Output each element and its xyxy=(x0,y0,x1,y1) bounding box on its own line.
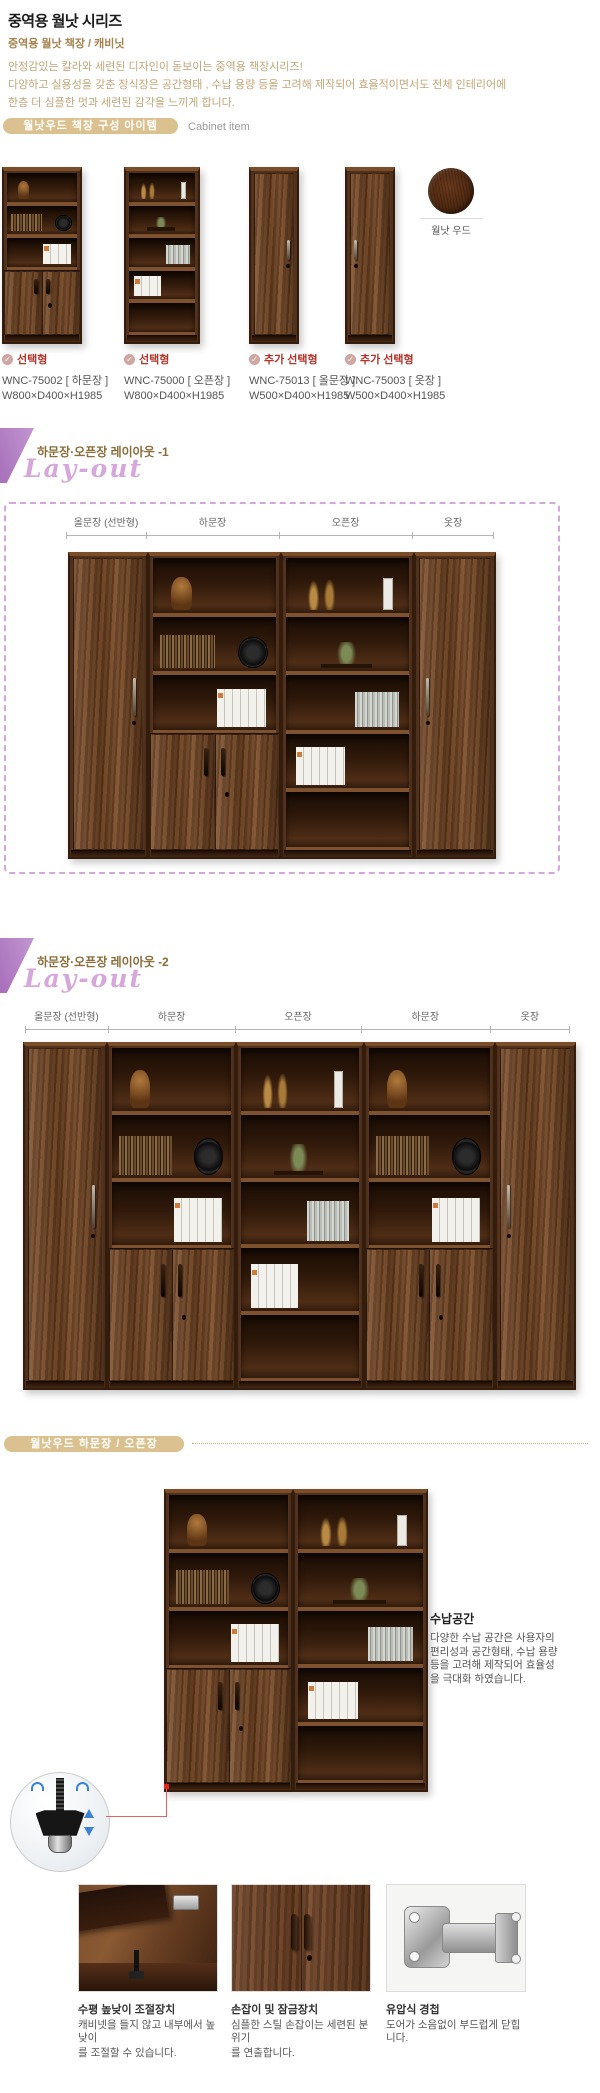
catalog-page: 중역용 월낫 시리즈 중역용 월낫 책장 / 캐비닛 안정감있는 칼라와 세련된… xyxy=(0,0,600,2093)
cd-row-decor xyxy=(368,1627,413,1661)
dimension-label: 하문장 xyxy=(361,1008,490,1023)
cabinet-door xyxy=(254,173,294,335)
shelf xyxy=(369,1182,490,1248)
dimension-line xyxy=(108,1026,236,1033)
hinge-cup xyxy=(495,1913,518,1964)
feature-text: 캐비넷을 들지 않고 내부에서 높낮이를 조절할 수 있습니다. xyxy=(78,2019,218,2060)
statue-decor xyxy=(321,642,373,668)
cabinet-shelves xyxy=(283,556,412,850)
bust-decor xyxy=(187,1514,207,1546)
storage-line: 편리성과 공간형태, 수납 용량 xyxy=(430,1646,580,1660)
cabinet-full_door xyxy=(23,1042,107,1390)
section-side-label: Cabinet item xyxy=(188,121,250,133)
binders-decor xyxy=(217,689,266,727)
keyhole xyxy=(91,1234,95,1238)
cabinet-shelves xyxy=(126,171,198,335)
door-handle xyxy=(204,748,208,776)
books-decor xyxy=(176,1570,229,1603)
cd-row-decor xyxy=(307,1201,349,1241)
page-title: 중역용 월낫 시리즈 xyxy=(8,10,568,31)
cabinet-lower_door xyxy=(107,1042,236,1390)
storage-line: 등을 고려해 제작되어 효율성 xyxy=(430,1659,580,1673)
layout1-cabinets xyxy=(68,552,496,859)
shelf xyxy=(7,238,77,270)
books-decor xyxy=(376,1136,429,1175)
description-line: 안정감있는 칼라와 세련된 디자인이 돋보이는 중역용 책장시리즈! xyxy=(8,58,568,76)
plaque-decor xyxy=(194,1138,223,1175)
cabinet-full_door xyxy=(68,552,148,859)
door-handle xyxy=(287,240,290,261)
cabinet-base xyxy=(127,335,197,342)
shelf xyxy=(241,1048,358,1115)
cabinet-base xyxy=(348,335,392,342)
figurines-decor xyxy=(301,580,343,609)
layout1-script-label: Lay-out xyxy=(24,454,143,483)
bust-decor xyxy=(387,1070,408,1108)
cabinet-full_door xyxy=(249,167,299,344)
layout2-dimensions: 올문장 (선반형)하문장오픈장하문장옷장 xyxy=(25,1008,570,1033)
cabinet-base xyxy=(367,1381,492,1388)
statue-decor xyxy=(274,1144,323,1174)
model-code: WNC-75002 xyxy=(2,375,63,387)
cabinet-doors xyxy=(366,1248,493,1381)
shelf xyxy=(369,1115,490,1182)
leveler-bracket xyxy=(36,1810,85,1835)
books-decor xyxy=(11,214,42,232)
door-handle xyxy=(221,748,225,776)
wood-swatch xyxy=(428,168,474,214)
dimension-segment: 옷장 xyxy=(490,1008,570,1033)
dimension-label: 오픈장 xyxy=(279,514,412,529)
feature-line: 를 조절할 수 있습니다. xyxy=(78,2047,218,2060)
product-type-label: 선택형 xyxy=(17,351,47,367)
page-header: 중역용 월낫 시리즈 중역용 월낫 책장 / 캐비닛 안정감있는 칼라와 세련된… xyxy=(8,10,568,112)
keyhole xyxy=(354,264,358,268)
storage-line: 을 극대화 하였습니다. xyxy=(430,1673,580,1687)
dotted-divider xyxy=(192,1443,588,1444)
feature-box: 유압식 경첩 도어가 소음없이 부드럽게 닫힙니다. xyxy=(386,1884,526,2045)
bust-decor xyxy=(130,1070,150,1108)
cabinet-illustration xyxy=(124,167,244,344)
door-left xyxy=(166,1669,229,1783)
feature-line: 를 연출합니다. xyxy=(231,2047,371,2060)
feature-box: 수평 높낮이 조절장치 캐비넷을 들지 않고 내부에서 높낮이를 조절할 수 있… xyxy=(78,1884,218,2060)
books-decor xyxy=(119,1136,172,1175)
cabinet-base xyxy=(252,335,296,342)
figurines-decor xyxy=(256,1074,296,1108)
shelf xyxy=(286,617,409,676)
door-right xyxy=(429,1249,493,1381)
door-left xyxy=(109,1249,172,1381)
variant-name: [ 옷장 ] xyxy=(409,375,441,387)
storage-note: 수납공간 다양한 수납 공간은 사용자의 편리성과 공간형태, 수납 용량 등을… xyxy=(430,1610,580,1686)
cabinet-base xyxy=(151,850,278,857)
rotate-arrow-icon xyxy=(31,1782,44,1791)
binders-decor xyxy=(43,244,71,264)
shelf xyxy=(129,303,195,335)
dimension-label: 옷장 xyxy=(412,514,494,529)
shelf xyxy=(153,558,276,617)
keyhole xyxy=(48,303,52,308)
cabinet-shelves xyxy=(238,1046,361,1381)
door-right xyxy=(172,1249,235,1381)
product-model: WNC-75003 [ 옷장 ] xyxy=(345,372,465,388)
leveler-bolt xyxy=(134,1950,139,1973)
feature-line: 심플한 스틸 손잡이는 세련된 분위기 xyxy=(231,2019,371,2045)
cabinet-lower_door xyxy=(364,1042,495,1390)
shelf xyxy=(298,1553,423,1611)
check-icon: ✓ xyxy=(345,354,356,365)
page-subtitle: 중역용 월낫 책장 / 캐비닛 xyxy=(8,35,568,51)
cabinet-lower_door xyxy=(2,167,82,344)
callout-connector-line xyxy=(106,1789,167,1817)
keyhole xyxy=(439,1315,443,1320)
description-line: 다양하고 실용성을 갖춘 장식장은 공간형태 , 수납 용량 등을 고려해 제작… xyxy=(8,76,568,94)
cabinet-shelves xyxy=(295,1493,426,1783)
page-description: 안정감있는 칼라와 세련된 디자인이 돋보이는 중역용 책장시리즈! 다양하고 … xyxy=(8,58,568,112)
cabinet-base xyxy=(498,1381,573,1388)
cabinet-shelves xyxy=(109,1046,234,1248)
vase-decor xyxy=(397,1515,407,1546)
statue-decor xyxy=(147,217,175,231)
dimension-line xyxy=(66,532,146,539)
feature-box: 손잡이 및 잠금장치 심플한 스틸 손잡이는 세련된 분위기를 연출합니다. xyxy=(231,1884,371,2060)
threaded-rod xyxy=(56,1778,64,1815)
shelf xyxy=(112,1048,231,1115)
section-pill-items: 월낫우드 책장 구성 아이템 xyxy=(3,118,178,134)
product-type-label: 추가 선택형 xyxy=(360,351,414,367)
dimension-line xyxy=(235,1026,360,1033)
cabinet-bottom xyxy=(79,1963,217,1991)
binders-decor xyxy=(296,747,345,785)
detail-cabinets xyxy=(164,1489,428,1792)
dimension-segment: 하문장 xyxy=(146,514,279,539)
feature-text: 도어가 소음없이 부드럽게 닫힙니다. xyxy=(386,2019,526,2045)
keyhole xyxy=(182,1315,186,1320)
books-decor xyxy=(160,635,214,669)
callout-dot xyxy=(164,1784,169,1789)
shelf xyxy=(286,734,409,793)
cabinet-base xyxy=(296,1783,425,1790)
feature-line: 캐비넷을 들지 않고 내부에서 높낮이 xyxy=(78,2019,218,2045)
keyhole xyxy=(239,1726,243,1731)
product-size: W800×D400×H1985 xyxy=(2,390,122,402)
door-handle xyxy=(34,279,38,295)
cabinet-base xyxy=(167,1783,290,1790)
cabinet-base xyxy=(26,1381,104,1388)
dimension-segment: 오픈장 xyxy=(279,514,412,539)
feature-text: 심플한 스틸 손잡이는 세련된 분위기를 연출합니다. xyxy=(231,2019,371,2060)
shelf xyxy=(241,1248,358,1315)
door-left xyxy=(150,734,215,850)
handles-photo xyxy=(231,1884,371,1992)
shelf xyxy=(298,1726,423,1783)
shelf xyxy=(129,271,195,304)
door-handle xyxy=(92,1185,95,1228)
binders-decor xyxy=(174,1198,222,1242)
vase-decor xyxy=(383,578,393,610)
shelf xyxy=(169,1611,288,1668)
cabinet-doors xyxy=(4,270,80,335)
shelf xyxy=(286,675,409,734)
binders-decor xyxy=(308,1682,358,1720)
keyhole xyxy=(426,721,430,725)
shelf xyxy=(7,173,77,206)
door-handle xyxy=(304,1914,310,1950)
product-type: ✓ 선택형 xyxy=(2,351,122,367)
binders-decor xyxy=(231,1624,279,1662)
binders-decor xyxy=(432,1198,480,1242)
cabinet-base xyxy=(239,1381,360,1388)
dimension-label: 하문장 xyxy=(146,514,279,529)
product-type-label: 선택형 xyxy=(139,351,169,367)
shelf xyxy=(241,1115,358,1182)
door-right xyxy=(215,734,280,850)
door-handle xyxy=(507,1185,510,1228)
dimension-segment: 옷장 xyxy=(412,514,494,539)
product-label: ✓ 추가 선택형 WNC-75003 [ 옷장 ] W500×D400×H198… xyxy=(345,351,465,402)
statue-decor xyxy=(333,1578,385,1604)
shelf-board xyxy=(78,1884,170,1933)
dimension-label: 올문장 (선반형) xyxy=(25,1008,108,1023)
product-label: ✓ 선택형 WNC-75002 [ 하문장 ] W800×D400×H1985 xyxy=(2,351,122,402)
shelf xyxy=(129,173,195,206)
rotate-arrow-icon xyxy=(76,1782,89,1791)
cabinet-wardrobe xyxy=(345,167,395,344)
shelf xyxy=(112,1115,231,1182)
layout1-dimensions: 올문장 (선반형)하문장오픈장옷장 xyxy=(66,514,494,539)
layout1-box: 올문장 (선반형)하문장오픈장옷장 xyxy=(4,502,560,874)
product-type: ✓ 추가 선택형 xyxy=(345,351,465,367)
cabinet-wardrobe xyxy=(414,552,496,859)
dimension-segment: 오픈장 xyxy=(235,1008,360,1033)
cabinet-illustration xyxy=(2,167,122,344)
dimension-segment: 올문장 (선반형) xyxy=(66,514,146,539)
feature-title: 수평 높낮이 조절장치 xyxy=(78,2001,218,2017)
shelf xyxy=(7,206,77,239)
model-code: WNC-75013 xyxy=(249,375,310,387)
plaque-decor xyxy=(238,637,268,669)
vase-decor xyxy=(334,1071,343,1107)
door-handle xyxy=(218,1682,222,1710)
shelf xyxy=(369,1048,490,1115)
shelf xyxy=(298,1611,423,1669)
dimension-line xyxy=(279,532,412,539)
hinge-arm xyxy=(442,1923,500,1953)
product-card: ✓ 선택형 WNC-75000 [ 오픈장 ] W800×D400×H1985 xyxy=(124,167,244,402)
figurines-decor xyxy=(137,183,159,198)
cd-row-decor xyxy=(166,245,190,263)
variant-name: [ 하문장 ] xyxy=(66,375,109,387)
cabinet-base xyxy=(284,850,411,857)
storage-title: 수납공간 xyxy=(430,1610,580,1627)
layout2-header: 하문장·오픈장 레이아웃 -2 Lay-out xyxy=(0,938,320,1000)
check-icon: ✓ xyxy=(124,354,135,365)
cabinet-shelves xyxy=(166,1493,291,1668)
layout1-header: 하문장·오픈장 레이아웃 -1 Lay-out xyxy=(0,428,320,490)
cabinet-open xyxy=(236,1042,363,1390)
hinge-photo xyxy=(386,1884,526,1992)
product-type-label: 추가 선택형 xyxy=(264,351,318,367)
dimension-label: 오픈장 xyxy=(235,1008,360,1023)
shelf xyxy=(241,1315,358,1381)
wood-swatch-label: 월낫 우드 xyxy=(420,218,482,237)
keyhole xyxy=(286,264,290,268)
cabinet-doors xyxy=(109,1248,234,1381)
shelf xyxy=(298,1668,423,1726)
cabinet-base xyxy=(5,335,79,342)
cabinet-base xyxy=(417,850,493,857)
dimension-segment: 하문장 xyxy=(361,1008,490,1033)
feature-title: 손잡이 및 잠금장치 xyxy=(231,2001,371,2017)
keyhole xyxy=(225,792,229,797)
cabinet-open xyxy=(124,167,200,344)
product-model: WNC-75000 [ 오픈장 ] xyxy=(124,372,244,388)
description-line: 한층 더 심플한 멋과 세련된 감각을 느끼게 합니다. xyxy=(8,94,568,112)
cabinet-lower_door xyxy=(164,1489,293,1792)
door-handle xyxy=(178,1264,182,1297)
bust-decor xyxy=(18,181,30,198)
shelf xyxy=(129,238,195,271)
cd-row-decor xyxy=(355,692,399,727)
vase-decor xyxy=(181,182,186,199)
dimension-line xyxy=(25,1026,108,1033)
plaque-decor xyxy=(55,215,72,232)
product-model: WNC-75002 [ 하문장 ] xyxy=(2,372,122,388)
dimension-label: 옷장 xyxy=(490,1008,570,1023)
shelf xyxy=(153,617,276,676)
shelf xyxy=(169,1553,288,1611)
cabinet-lower_door xyxy=(148,552,281,859)
leveler-foot xyxy=(48,1835,72,1854)
check-icon: ✓ xyxy=(249,354,260,365)
shelf xyxy=(129,206,195,239)
door-right xyxy=(42,271,80,335)
hinge-small xyxy=(173,1895,199,1910)
door-handle xyxy=(46,279,50,295)
door-handle xyxy=(426,678,429,716)
cabinet-doors xyxy=(166,1668,291,1783)
cabinet-door xyxy=(28,1048,102,1381)
shelf xyxy=(112,1182,231,1248)
door-handle xyxy=(354,240,357,261)
leveler-detail-circle xyxy=(10,1772,110,1872)
dimension-line xyxy=(412,532,494,539)
door-left xyxy=(366,1249,430,1381)
door-handle xyxy=(419,1264,423,1297)
dimension-line xyxy=(146,532,279,539)
dimension-line xyxy=(490,1026,570,1033)
cabinet-door xyxy=(73,558,143,850)
storage-line: 다양한 수납 공간은 사용자의 xyxy=(430,1632,580,1646)
product-label: ✓ 선택형 WNC-75000 [ 오픈장 ] W800×D400×H1985 xyxy=(124,351,244,402)
door-handle xyxy=(133,678,136,716)
cabinet-base xyxy=(110,1381,233,1388)
cabinet-door xyxy=(350,173,390,335)
cabinet-open xyxy=(293,1489,428,1792)
arrow-up-icon xyxy=(84,1809,94,1818)
keyhole xyxy=(307,1955,312,1961)
layout2-script-label: Lay-out xyxy=(24,964,143,993)
dimension-line xyxy=(361,1026,490,1033)
shelf xyxy=(153,675,276,733)
cabinet-shelves xyxy=(366,1046,493,1248)
shelf xyxy=(286,792,409,850)
binders-decor xyxy=(134,276,160,296)
shelf xyxy=(286,558,409,617)
dimension-label: 하문장 xyxy=(108,1008,236,1023)
cabinet-door xyxy=(419,558,491,850)
dimension-label: 올문장 (선반형) xyxy=(66,514,146,529)
binders-decor xyxy=(251,1264,298,1308)
cabinet-doors xyxy=(150,733,279,850)
keyhole xyxy=(507,1234,511,1238)
feature-title: 유압식 경첩 xyxy=(386,2001,526,2017)
door-handle xyxy=(161,1264,165,1297)
shelf xyxy=(298,1495,423,1553)
door-left xyxy=(4,271,42,335)
door-handle xyxy=(291,1914,297,1950)
keyhole xyxy=(132,721,136,725)
product-type: ✓ 선택형 xyxy=(124,351,244,367)
cabinet-wardrobe xyxy=(495,1042,576,1390)
bust-decor xyxy=(171,577,192,610)
shelf xyxy=(241,1182,358,1249)
arrow-down-icon xyxy=(84,1827,94,1836)
cabinet-shelves xyxy=(150,556,279,733)
section-pill-detail: 월낫우드 하문장 / 오픈장 xyxy=(4,1436,184,1452)
product-size: W500×D400×H1985 xyxy=(345,390,465,402)
door-right xyxy=(229,1669,292,1783)
product-size: W800×D400×H1985 xyxy=(124,390,244,402)
feature-line: 도어가 소음없이 부드럽게 닫힙니다. xyxy=(386,2019,526,2045)
leveler-photo xyxy=(78,1884,218,1992)
product-card: ✓ 선택형 WNC-75002 [ 하문장 ] W800×D400×H1985 xyxy=(2,167,122,402)
layout2-cabinets xyxy=(23,1042,576,1390)
cabinet-base xyxy=(71,850,145,857)
model-code: WNC-75000 xyxy=(124,375,185,387)
dimension-segment: 올문장 (선반형) xyxy=(25,1008,108,1033)
cabinet-shelves xyxy=(4,171,80,270)
door-handle xyxy=(436,1264,440,1297)
variant-name: [ 오픈장 ] xyxy=(188,375,231,387)
model-code: WNC-75003 xyxy=(345,375,406,387)
plaque-decor xyxy=(452,1138,481,1175)
figurines-decor xyxy=(313,1517,355,1546)
cabinet-open xyxy=(281,552,414,859)
shelf xyxy=(169,1495,288,1553)
door-handle xyxy=(235,1682,239,1710)
check-icon: ✓ xyxy=(2,354,13,365)
cabinet-door xyxy=(500,1048,571,1381)
plaque-decor xyxy=(251,1573,280,1604)
dimension-segment: 하문장 xyxy=(108,1008,236,1033)
